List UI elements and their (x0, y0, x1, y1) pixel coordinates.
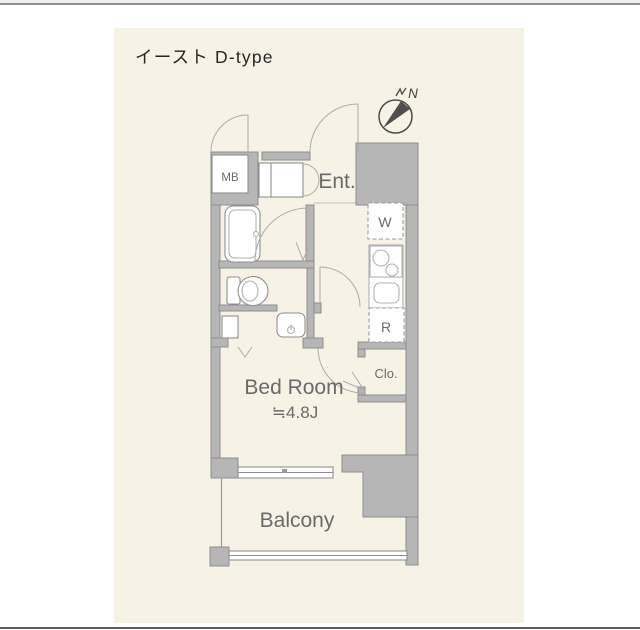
wall-closet-jamb-top (358, 349, 365, 357)
label-meter-box: MB (221, 172, 239, 184)
wall-toilet-wash (219, 305, 277, 311)
wall-hall-upper (306, 205, 314, 267)
compass-zigzag (396, 88, 406, 96)
toilet-bowl-inner (242, 281, 258, 301)
floorplan-screenshot: イースト D-type (0, 0, 640, 630)
label-closet: Clo. (374, 366, 397, 381)
compass: N (379, 86, 418, 133)
hall-door-arc (320, 267, 360, 307)
label-refrigerator: R (381, 319, 391, 335)
toilet (227, 277, 268, 306)
label-washing-machine: W (378, 214, 392, 230)
entrance-door-arc (310, 104, 358, 152)
wall-bedroom-se-block (342, 455, 418, 517)
bathtub (225, 206, 260, 262)
wall-hall-lower (307, 267, 314, 348)
wall-top-middle (262, 152, 310, 160)
wall-wash-bottom-right (303, 338, 323, 348)
compass-needle (383, 101, 410, 128)
shoe-cabinet (259, 163, 303, 197)
label-bedroom-area: ≒4.8J (272, 403, 318, 422)
compass-north-label: N (408, 86, 418, 101)
kitchen (369, 245, 403, 308)
label-entrance: Ent. (318, 170, 355, 193)
wall-wash-bottom-left (211, 338, 228, 347)
wall-topright-block (356, 143, 418, 205)
bedroom-window (238, 467, 333, 478)
wall-balcony-post (210, 547, 229, 566)
stove-burner-large (373, 250, 389, 266)
label-balcony: Balcony (260, 509, 335, 532)
bathtub-inner (229, 210, 256, 258)
wall-closet-top (358, 342, 406, 349)
kitchen-sink (374, 283, 399, 303)
washroom-cabinet (222, 316, 238, 338)
bottom-divider-line (0, 627, 640, 629)
wall-bedroom-sw-block (211, 458, 238, 478)
cabinet-door-arc-bottom (303, 180, 319, 196)
mb-door-arc (211, 115, 248, 152)
label-bedroom: Bed Room (244, 376, 343, 399)
shoe-cabinet-body (259, 163, 303, 197)
washroom-door-fold (238, 347, 252, 357)
window-latch (282, 469, 287, 473)
cabinet-door-arc-top (303, 164, 319, 180)
wall-closet-bottom (358, 395, 406, 402)
washbasin (277, 313, 305, 337)
stove-burner-small (386, 264, 398, 276)
bathtub-faucet (254, 232, 259, 237)
floorplan-drawing: N MB Ent. W R Clo. Bed Room ≒4.8J Balcon… (0, 0, 640, 630)
